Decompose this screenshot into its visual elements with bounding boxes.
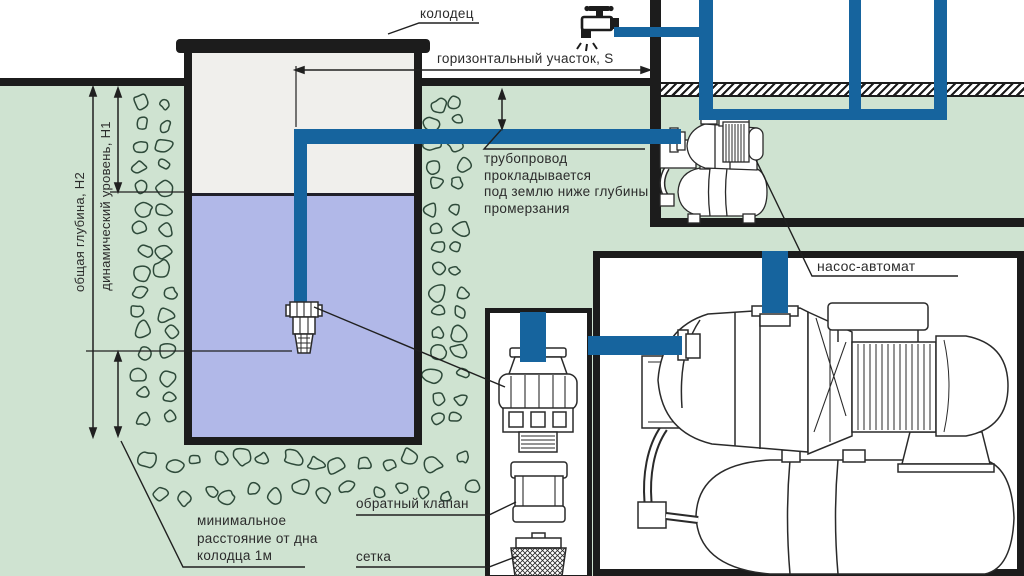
label-strainer: сетка (356, 549, 391, 566)
pipeline-note-line: промерзания (484, 201, 648, 218)
ground-line-right (422, 78, 661, 86)
min-distance-line: минимальное (197, 512, 318, 530)
pipe-filter-detail (520, 312, 546, 362)
label-pump-station: насос-автомат (817, 258, 916, 275)
suction-fitting-drawing (282, 296, 324, 358)
pipe-riser-main (699, 0, 713, 119)
ground-line-left (0, 78, 184, 86)
pipe-distribution (699, 109, 947, 120)
pipeline-note-line: прокладывается (484, 168, 648, 185)
label-total-depth: общая глубина, Н2 (72, 172, 89, 292)
well-wall-right (414, 52, 422, 445)
pipe-riser-2 (849, 0, 861, 117)
pipe-faucet (614, 27, 706, 37)
house-floor-hatch (661, 82, 1024, 97)
label-well: колодец (420, 6, 474, 23)
label-check-valve: обратный клапан (356, 496, 469, 513)
pipe-pump-detail-horizontal (588, 336, 682, 355)
well-lid (176, 39, 430, 53)
pipeline-note-line: трубопровод (484, 151, 648, 168)
pipe-pump-detail-vertical (762, 251, 788, 313)
pipe-suction-horizontal (294, 129, 681, 144)
label-pipeline-note: трубопровод прокладывается под землю ниж… (484, 151, 648, 217)
label-min-distance: минимальное расстояние от дна колодца 1м (197, 512, 318, 565)
pump-station-large-drawing (600, 256, 1022, 576)
pipeline-note-line: под землю ниже глубины (484, 184, 648, 201)
well-bottom (184, 437, 422, 445)
well-water-supply-diagram: колодец горизонтальный участок, S трубоп… (0, 0, 1024, 576)
min-distance-line: расстояние от дна (197, 530, 318, 548)
label-dynamic-level: динамический уровень, Н1 (98, 121, 115, 291)
pipe-suction-vertical (294, 133, 307, 303)
min-distance-line: колодца 1м (197, 547, 318, 565)
well-wall-left (184, 52, 192, 445)
pipe-riser-3 (934, 0, 947, 119)
label-horizontal-section: горизонтальный участок, S (437, 51, 614, 68)
